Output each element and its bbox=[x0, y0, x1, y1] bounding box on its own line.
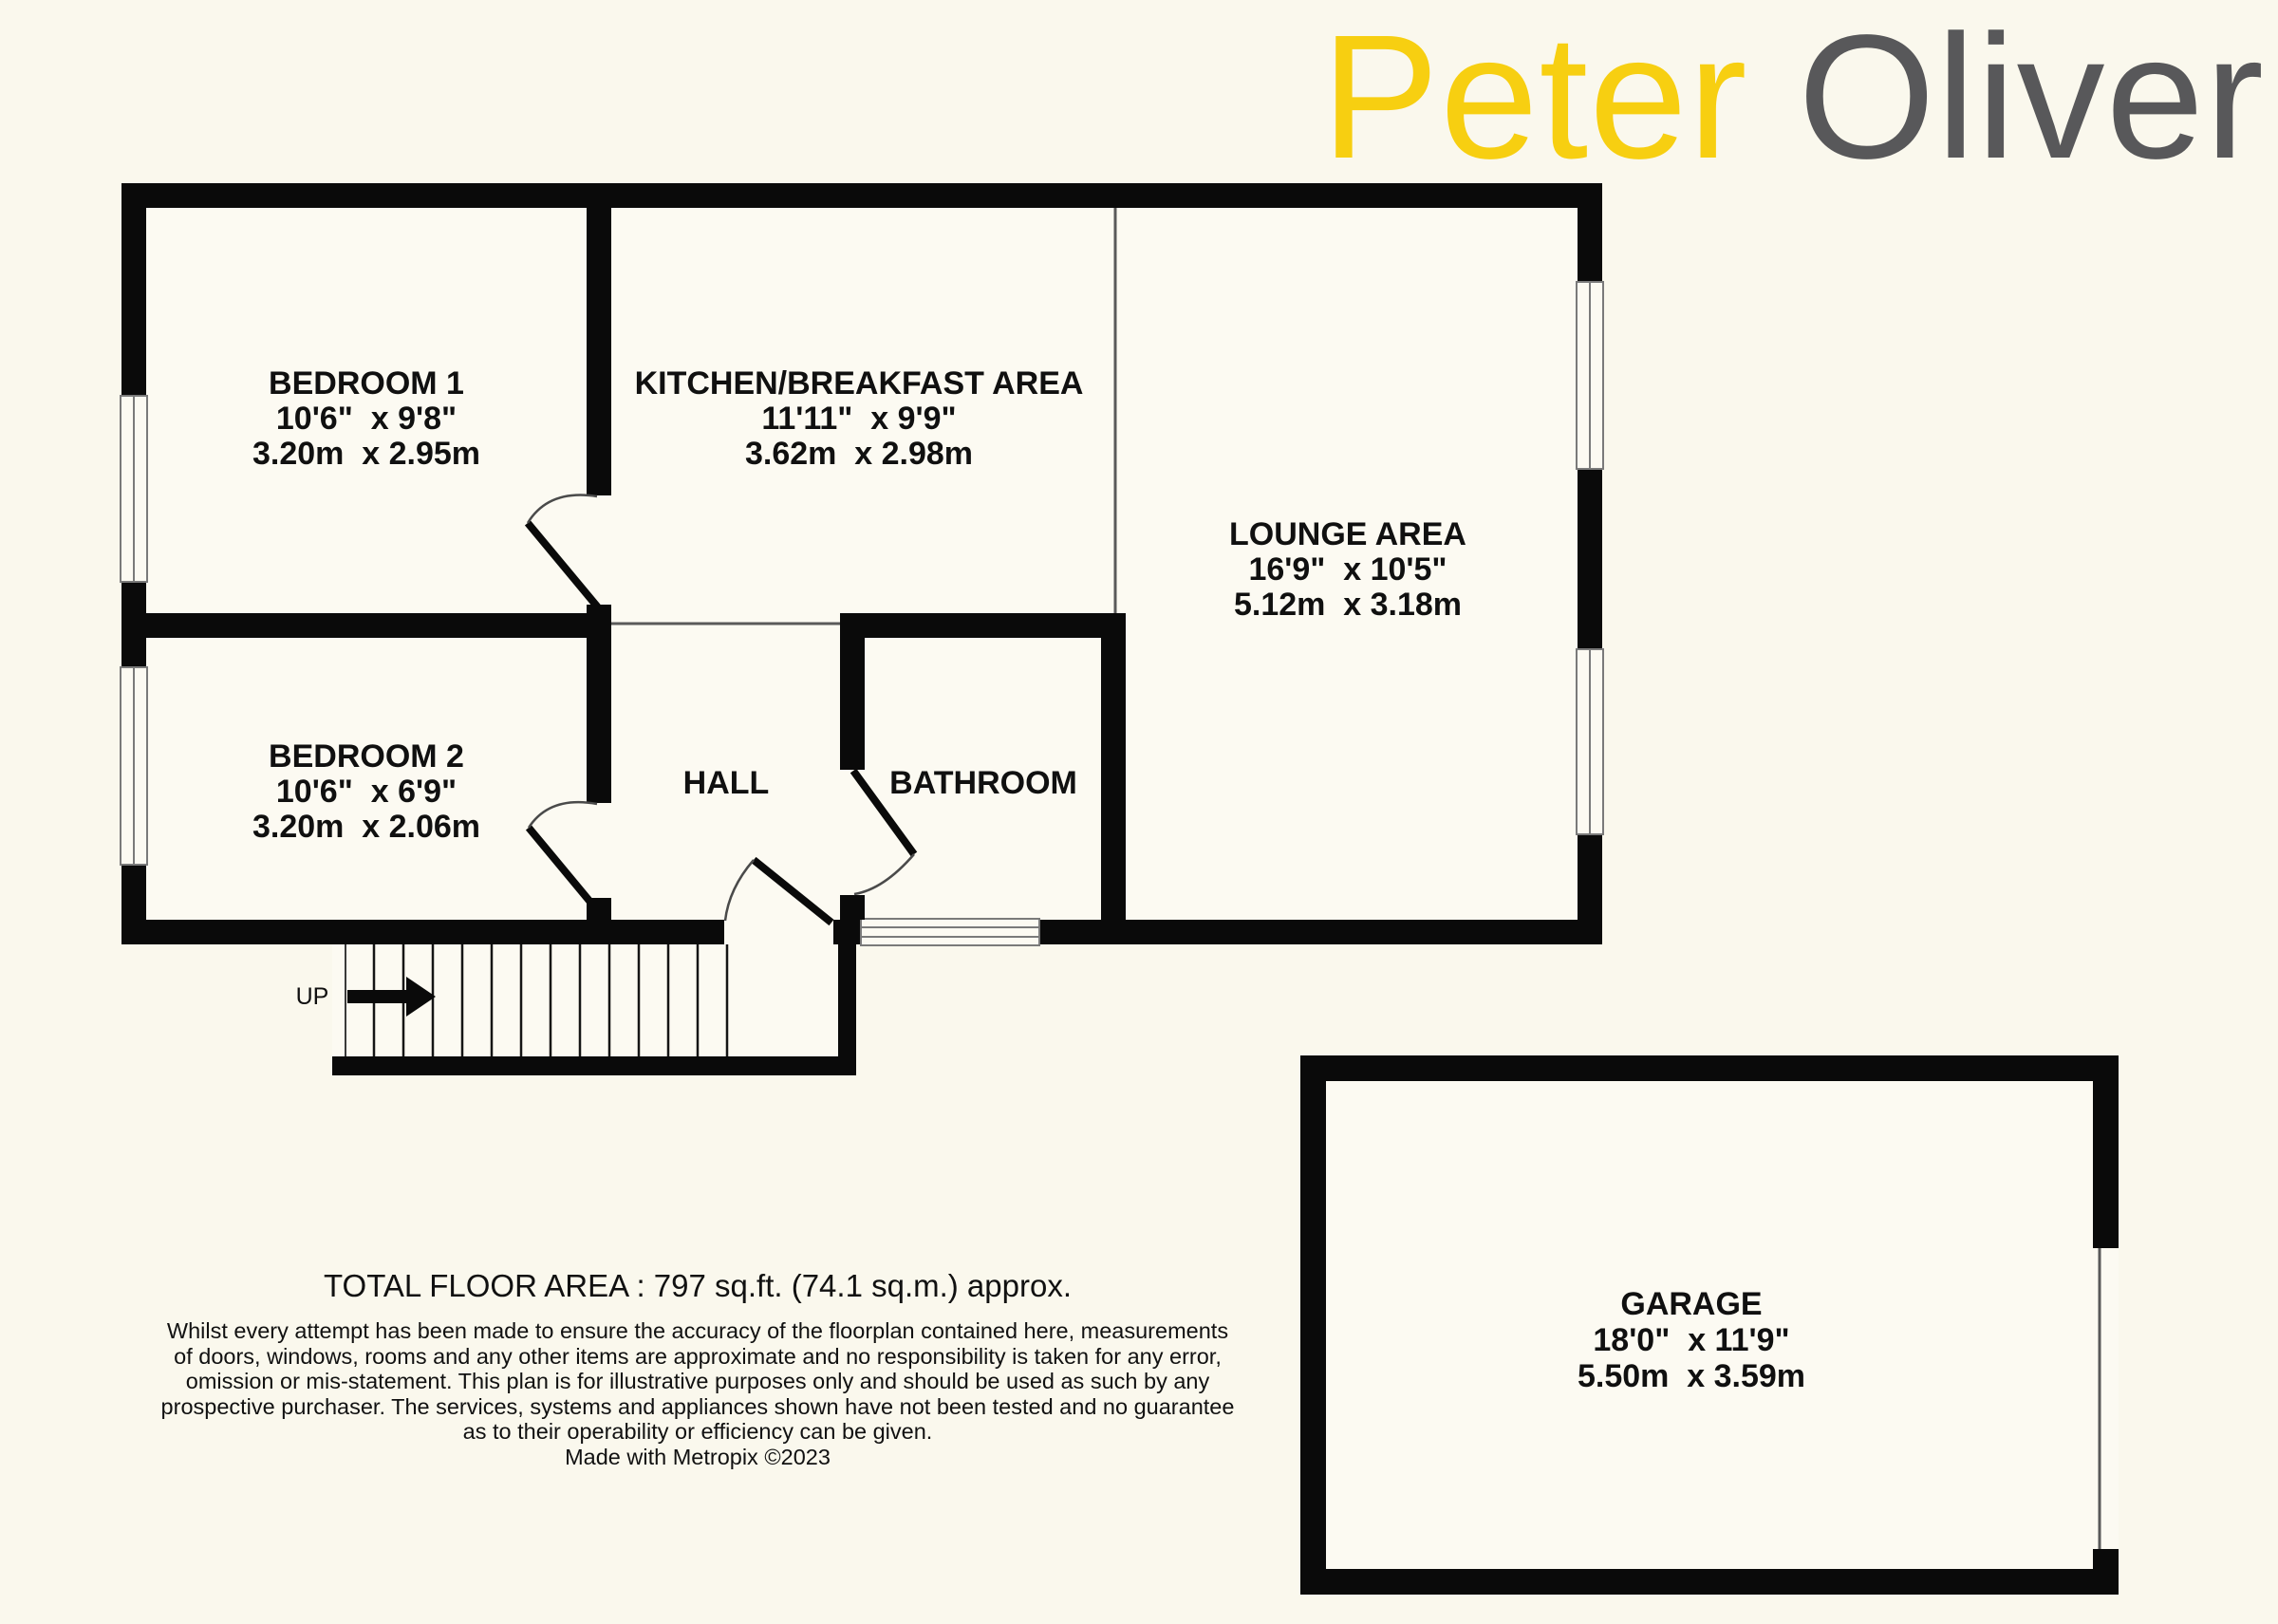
wall-bottom-stub bbox=[833, 920, 861, 944]
wall-bedroom1-kitchen bbox=[587, 208, 611, 495]
lounge-window-lower bbox=[1577, 649, 1603, 834]
disclaimer-line: of doors, windows, rooms and any other i… bbox=[81, 1344, 1315, 1370]
bedroom2-imperial: 10'6" x 6'9" bbox=[276, 774, 457, 810]
wall-bathroom-right bbox=[1101, 638, 1126, 920]
wall-top bbox=[121, 183, 1602, 208]
garage-wall-bottom bbox=[1300, 1569, 2119, 1595]
kitchen-imperial: 11'11" x 9'9" bbox=[761, 401, 956, 437]
house-ground-floor: UP BEDROOM 1 10'6" x 9'8" 3.20m x 2.95m … bbox=[121, 183, 1603, 1075]
garage-wall-top bbox=[1300, 1055, 2119, 1081]
bedroom1-metric: 3.20m x 2.95m bbox=[252, 436, 480, 472]
lounge-name: LOUNGE AREA bbox=[1229, 516, 1466, 552]
window-frame bbox=[861, 919, 1039, 945]
lounge-window-upper bbox=[1577, 282, 1603, 469]
disclaimer-line: Whilst every attempt has been made to en… bbox=[81, 1318, 1315, 1344]
metropix-credit: Made with Metropix ©2023 bbox=[81, 1445, 1315, 1470]
garage-wall-right-lower bbox=[2093, 1549, 2119, 1595]
lounge-imperial: 16'9" x 10'5" bbox=[1248, 551, 1447, 588]
bedroom1-window bbox=[121, 396, 147, 582]
wall-bedroom2-hall bbox=[587, 638, 611, 803]
disclaimer-line: as to their operability or efficiency ca… bbox=[81, 1419, 1315, 1445]
garage-wall-right-upper bbox=[2093, 1055, 2119, 1248]
bedroom2-window bbox=[121, 667, 147, 865]
bathroom-window bbox=[861, 919, 1039, 945]
wall-bathroom-left-lower bbox=[840, 895, 865, 920]
wall-bedroom-divider bbox=[121, 613, 611, 638]
garage-name: GARAGE bbox=[1620, 1286, 1762, 1322]
up-label: UP bbox=[296, 983, 329, 1010]
bedroom1-name: BEDROOM 1 bbox=[269, 365, 464, 401]
disclaimer-line: prospective purchaser. The services, sys… bbox=[81, 1394, 1315, 1420]
footer-text-block: TOTAL FLOOR AREA : 797 sq.ft. (74.1 sq.m… bbox=[81, 1268, 1315, 1469]
disclaimer-line: omission or mis-statement. This plan is … bbox=[81, 1369, 1315, 1394]
stairs-bottom-wall bbox=[332, 1056, 856, 1075]
wall-bottom-right bbox=[1039, 920, 1602, 944]
hall-name: HALL bbox=[683, 765, 770, 801]
kitchen-metric: 3.62m x 2.98m bbox=[745, 436, 973, 472]
wall-left-upper bbox=[121, 183, 146, 396]
garage-imperial: 18'0" x 11'9" bbox=[1593, 1322, 1789, 1358]
wall-bathroom-left-upper bbox=[840, 638, 865, 770]
wall-right-upper bbox=[1578, 183, 1602, 282]
bathroom-name: BATHROOM bbox=[889, 765, 1077, 801]
bedroom2-metric: 3.20m x 2.06m bbox=[252, 809, 480, 845]
wall-right-middle bbox=[1578, 469, 1602, 649]
garage-building: GARAGE 18'0" x 11'9" 5.50m x 3.59m bbox=[1300, 1055, 2119, 1595]
wall-bathroom-top bbox=[840, 613, 1126, 638]
total-floor-area: TOTAL FLOOR AREA : 797 sq.ft. (74.1 sq.m… bbox=[81, 1268, 1315, 1304]
kitchen-name: KITCHEN/BREAKFAST AREA bbox=[635, 365, 1084, 401]
bedroom2-name: BEDROOM 2 bbox=[269, 738, 464, 775]
stairs-right-wall bbox=[838, 944, 856, 1075]
bedroom1-imperial: 10'6" x 9'8" bbox=[276, 401, 457, 437]
wall-bottom-left bbox=[121, 920, 724, 944]
up-arrow-shaft bbox=[347, 990, 406, 1003]
lounge-metric: 5.12m x 3.18m bbox=[1234, 587, 1462, 623]
garage-metric: 5.50m x 3.59m bbox=[1578, 1358, 1805, 1394]
